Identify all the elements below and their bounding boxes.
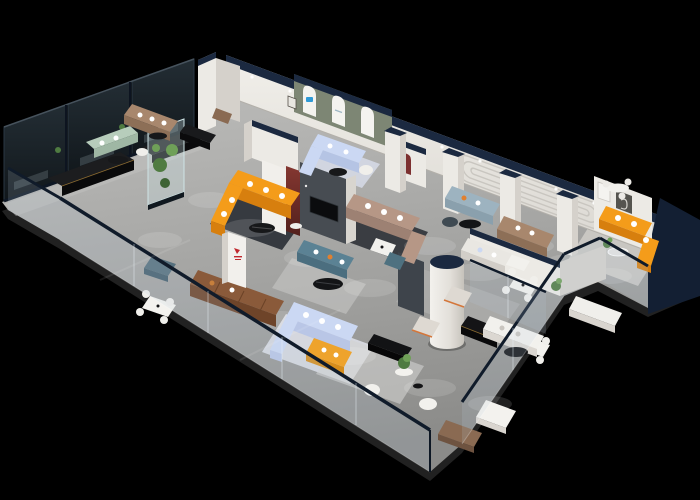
pillar (384, 127, 407, 193)
dark-armchair (442, 217, 458, 227)
black-coffee-table (149, 133, 167, 140)
black-coffee-table (108, 156, 128, 164)
logo-pillar (222, 232, 246, 288)
white-side-table (290, 223, 302, 229)
white-round-table (607, 184, 629, 193)
black-stool (413, 384, 423, 389)
white-armchair (136, 148, 148, 156)
arch-niche-3 (361, 107, 374, 138)
pillar (556, 190, 579, 256)
white-swivel-chair (419, 398, 437, 410)
white-armchair (359, 165, 373, 175)
floorplan-render (0, 0, 700, 500)
black-coffee-table (329, 168, 347, 176)
white-round-table (395, 368, 413, 376)
black-round-table (459, 220, 481, 229)
blue-logo-mark-icon (306, 97, 313, 102)
showroom-scene (0, 0, 700, 500)
glass-box-plant (55, 147, 61, 153)
